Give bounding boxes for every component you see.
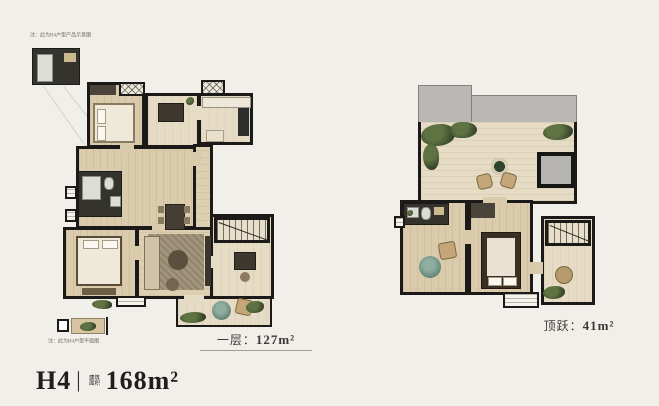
pillow (488, 277, 502, 286)
sink (110, 196, 121, 207)
desk-chair (240, 272, 250, 282)
stair-diagonal (550, 225, 591, 242)
area-label: 建筑 面积 (89, 376, 101, 387)
window-box (65, 186, 77, 199)
dining-chair (158, 217, 164, 224)
door-opening (194, 106, 202, 120)
first-floor-caption-value: 127m² (256, 332, 295, 347)
door-opening (530, 262, 543, 274)
kitchen-table (206, 130, 224, 142)
bay-window (116, 296, 146, 307)
unit-area-value: 168m² (106, 366, 179, 396)
window-box (65, 209, 77, 222)
roof-slab (418, 85, 472, 125)
inset-fixture (37, 54, 53, 82)
tv-cabinet (205, 236, 211, 286)
bed-linen (487, 238, 515, 276)
armchair (555, 266, 573, 284)
note-bottom: 注：此为H4户型平面图 (48, 339, 99, 344)
top-balcony-hatch (119, 82, 145, 96)
door-opening (134, 246, 142, 260)
plant (80, 322, 96, 331)
round-rug (419, 256, 441, 278)
skylight-void (537, 152, 575, 188)
sofa (144, 236, 160, 290)
pillow (83, 240, 99, 249)
pillow (503, 277, 517, 286)
wardrobe (471, 203, 495, 218)
bathroom (78, 171, 122, 217)
pillow (97, 126, 106, 141)
note-top: 注：此为H4户型产品示意图 (30, 33, 91, 38)
door-opening (120, 143, 134, 153)
master-bed (76, 236, 122, 286)
pillow (102, 240, 118, 249)
staircase (545, 220, 591, 246)
first-floor-caption: 一层：127m² (200, 331, 312, 351)
top-level-caption-label: 顶跃： (544, 319, 583, 333)
toilet (421, 207, 431, 220)
inset-window (57, 319, 69, 332)
toilet (104, 177, 114, 190)
window-box (394, 216, 405, 228)
dining-chair (158, 206, 164, 213)
first-floor-plan (62, 46, 277, 336)
inset-balcony-diagram (55, 317, 111, 336)
unit-title: H4 | 建筑 面积 168m² (36, 366, 179, 396)
plant (423, 144, 439, 170)
desk (158, 103, 184, 122)
title-divider: | (76, 367, 80, 393)
top-level-plan (393, 80, 608, 312)
dining-chair (184, 206, 190, 213)
inset-wall-tick (106, 317, 108, 335)
stair-diagonal (219, 222, 270, 241)
inset-planter (71, 318, 105, 334)
cabinet (434, 207, 444, 215)
area-label-line2: 面积 (89, 381, 101, 387)
plant (92, 300, 112, 309)
kitchen-counter (202, 97, 251, 108)
round-rug (212, 301, 231, 320)
first-floor-caption-label: 一层： (217, 333, 256, 347)
armchair (438, 241, 458, 261)
pillow (97, 109, 106, 124)
stove (238, 108, 249, 136)
unit-model: H4 (36, 366, 71, 396)
shower (82, 176, 101, 200)
bed (93, 103, 135, 143)
wardrobe (90, 85, 116, 95)
bed-bench (82, 288, 116, 295)
dining-table (165, 204, 185, 230)
dining-chair (184, 217, 190, 224)
top-level-caption: 顶跃：41m² (523, 317, 635, 334)
top-level-caption-value: 41m² (583, 318, 615, 333)
door-opening (191, 152, 202, 166)
floorplan-sheet: 注：此为H4户型产品示意图 (0, 0, 659, 406)
side-table (166, 278, 179, 291)
kitchen-vent-hatch (201, 80, 225, 95)
staircase (214, 217, 270, 243)
coffee-table (168, 250, 188, 270)
desk (234, 252, 256, 270)
upper-bed (481, 232, 521, 289)
lower-balcony (503, 292, 539, 308)
door-opening (184, 295, 204, 301)
door-opening (465, 230, 473, 244)
roof-slab (471, 95, 577, 125)
